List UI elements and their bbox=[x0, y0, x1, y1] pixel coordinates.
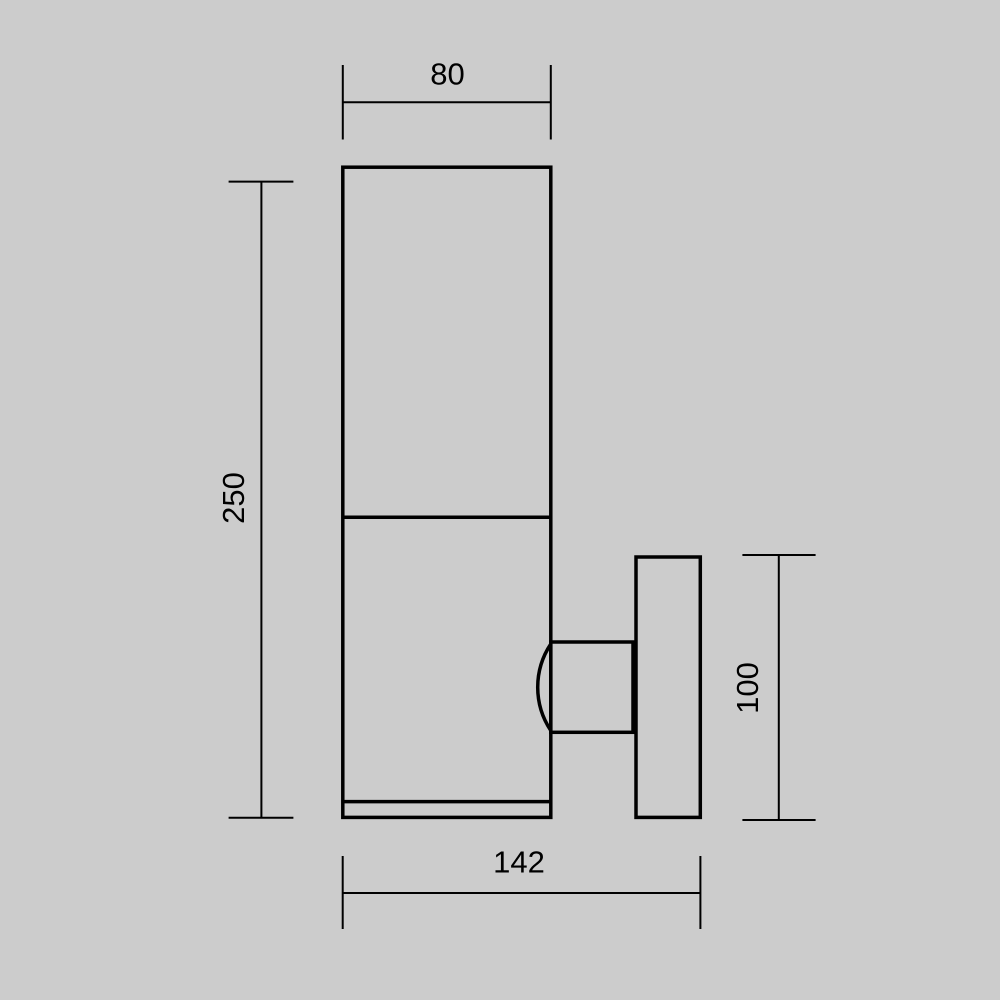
svg-text:250: 250 bbox=[216, 472, 251, 524]
svg-text:142: 142 bbox=[493, 845, 545, 880]
svg-text:100: 100 bbox=[730, 662, 765, 714]
svg-text:80: 80 bbox=[430, 57, 464, 92]
